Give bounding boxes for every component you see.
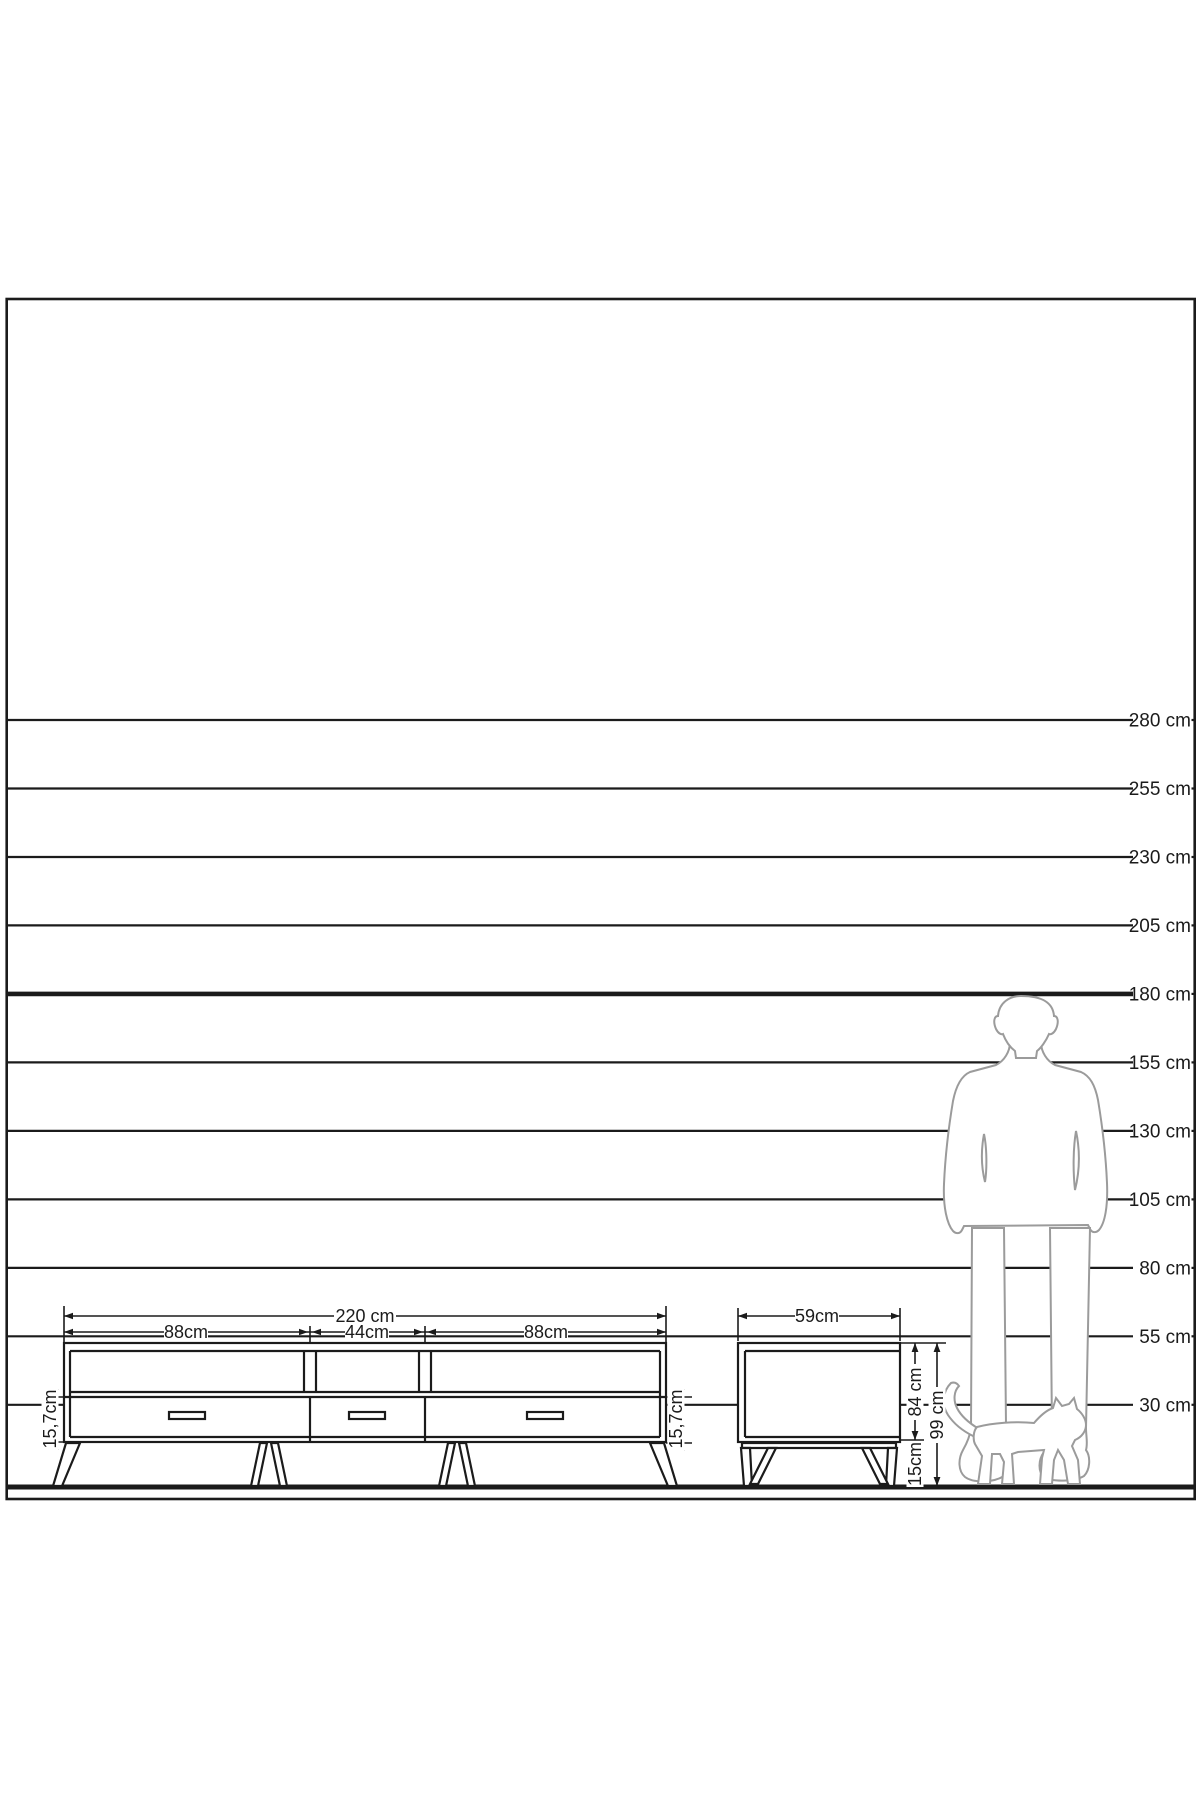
tv-leg-mid1a bbox=[251, 1443, 267, 1486]
dim-label-84: 84 cm bbox=[905, 1364, 925, 1420]
dim-label-15: 15cm bbox=[905, 1441, 925, 1487]
tv-leg-mid1b bbox=[271, 1443, 287, 1486]
dim-label-99: 99 cm bbox=[927, 1387, 947, 1443]
scale-label-55cm: 55 cm bbox=[1139, 1327, 1191, 1348]
frame-border bbox=[7, 299, 1195, 1499]
tv-front-height-right-label: 15,7cm bbox=[666, 1389, 686, 1448]
diagram-drawing: 280 cm255 cm230 cm205 cm180 cm155 cm130 … bbox=[0, 0, 1200, 1800]
side-total-height-label: 99 cm bbox=[927, 1390, 947, 1439]
side-width-label: 59cm bbox=[795, 1306, 839, 1326]
scale-label-80cm: 80 cm bbox=[1139, 1258, 1191, 1279]
side-body-height-label: 84 cm bbox=[905, 1367, 925, 1416]
side-leg-left-brace bbox=[750, 1448, 776, 1484]
scale-label-180cm: 180 cm bbox=[1129, 984, 1191, 1005]
tv-leg-mid2a bbox=[439, 1443, 455, 1486]
dim-label-157-right: 15,7cm bbox=[666, 1387, 686, 1451]
side-leg-left-outer bbox=[741, 1448, 752, 1486]
dim-label-88-right: 88cm bbox=[524, 1322, 568, 1342]
tv-section-right-label: 88cm bbox=[524, 1322, 568, 1342]
side-unit-legs bbox=[741, 1443, 897, 1486]
drawer-handle-left bbox=[169, 1412, 205, 1419]
person-left-hand-line bbox=[982, 1134, 987, 1182]
scale-label-155cm: 155 cm bbox=[1129, 1053, 1191, 1074]
scale-label-30cm: 30 cm bbox=[1139, 1395, 1191, 1416]
person-torso bbox=[944, 1042, 1107, 1233]
tv-stand bbox=[53, 1343, 677, 1486]
furniture-dimension-diagram: 280 cm255 cm230 cm205 cm180 cm155 cm130 … bbox=[0, 0, 1200, 1800]
tv-stand-legs bbox=[53, 1443, 677, 1486]
person-silhouette bbox=[944, 996, 1107, 1481]
dim-label-44: 44cm bbox=[345, 1322, 389, 1342]
dim-label-157-left: 15,7cm bbox=[40, 1387, 60, 1451]
side-leg-right-brace bbox=[862, 1448, 888, 1484]
tv-front-height-left-label: 15,7cm bbox=[40, 1389, 60, 1448]
scale-label-105cm: 105 cm bbox=[1129, 1190, 1191, 1211]
scale-label-130cm: 130 cm bbox=[1129, 1121, 1191, 1142]
side-leg-right-outer bbox=[886, 1448, 897, 1486]
scale-label-205cm: 205 cm bbox=[1129, 916, 1191, 937]
tv-section-left-label: 88cm bbox=[164, 1322, 208, 1342]
side-unit bbox=[738, 1343, 900, 1486]
side-leg-rail bbox=[742, 1443, 896, 1448]
tv-section-middle-label: 44cm bbox=[345, 1322, 389, 1342]
tv-leg-mid2b bbox=[459, 1443, 475, 1486]
drawer-handle-right bbox=[527, 1412, 563, 1419]
dim-label-88-left: 88cm bbox=[164, 1322, 208, 1342]
dim-label-59: 59cm bbox=[795, 1306, 839, 1326]
drawer-handle-middle bbox=[349, 1412, 385, 1419]
side-unit-body bbox=[738, 1343, 900, 1442]
scale-label-230cm: 230 cm bbox=[1129, 848, 1191, 869]
scale-label-280cm: 280 cm bbox=[1129, 711, 1191, 732]
side-leg-height-label: 15cm bbox=[905, 1442, 925, 1486]
scale-label-255cm: 255 cm bbox=[1129, 779, 1191, 800]
person-head bbox=[994, 996, 1057, 1058]
